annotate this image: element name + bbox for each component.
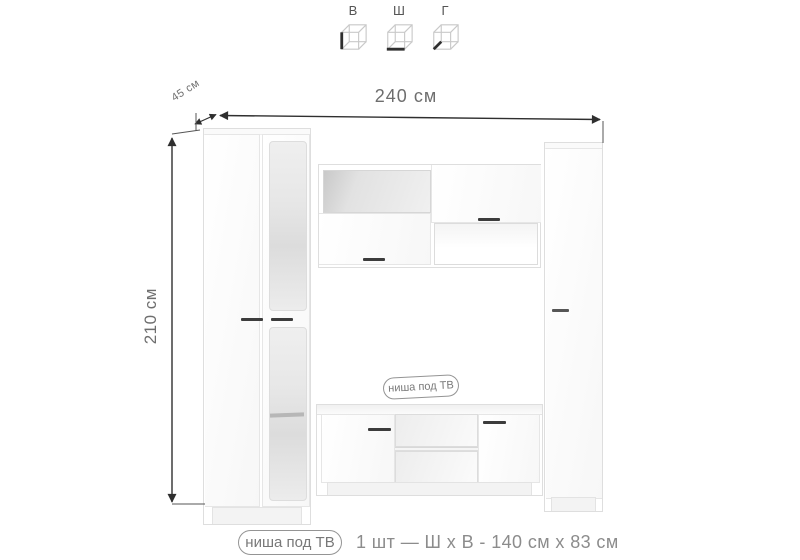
furniture-diagram: В Ш — [0, 0, 800, 560]
left-cabinet — [203, 128, 311, 525]
right-cabinet-door-handle — [552, 309, 569, 312]
tv-niche-badge: ниша под ТВ — [382, 374, 459, 400]
right-cabinet — [544, 142, 603, 512]
cube-width-edge-icon — [384, 21, 414, 53]
depth-dimension-line — [195, 115, 216, 125]
right-cabinet-door — [546, 148, 602, 499]
legend-item-height: В — [338, 3, 368, 53]
width-dimension-label: 240 см — [356, 86, 456, 107]
footer-niche-spec: 1 шт — Ш х В - 140 см х 83 см — [356, 532, 619, 553]
left-cabinet-glass-door-handle — [271, 318, 293, 321]
orientation-legend: В Ш — [338, 3, 460, 53]
tv-stand-left-door — [321, 414, 395, 483]
right-cabinet-plinth — [551, 497, 596, 511]
tv-stand — [316, 404, 543, 496]
wall-cabinet-right-door — [431, 165, 541, 223]
cube-depth-edge-icon — [430, 21, 460, 53]
depth-dimension-label: 45 см — [169, 77, 201, 104]
width-dimension-line — [220, 116, 600, 120]
legend-item-width: Ш — [384, 3, 414, 53]
tv-niche-badge-label: ниша под ТВ — [388, 379, 454, 394]
footer-niche-badge: ниша под ТВ — [238, 530, 342, 555]
legend-label-width: Ш — [393, 3, 405, 18]
wall-cabinet — [318, 164, 541, 268]
left-cabinet-plinth — [212, 507, 302, 524]
wall-cabinet-open-niche-right — [434, 223, 538, 265]
tv-stand-open-shelf-lower — [395, 451, 478, 483]
left-cabinet-glass-panel-upper — [269, 141, 307, 311]
legend-label-height: В — [349, 3, 358, 18]
left-cabinet-left-door-handle — [241, 318, 263, 321]
legend-item-depth: Г — [430, 3, 460, 53]
tv-stand-open-shelf-upper — [395, 414, 478, 447]
tv-stand-left-door-handle — [368, 428, 391, 431]
tv-stand-right-door — [478, 414, 540, 483]
wall-cabinet-left-door-handle — [363, 258, 385, 261]
height-dimension-label: 210 см — [141, 288, 161, 344]
tv-stand-plinth — [327, 482, 532, 495]
legend-label-depth: Г — [441, 3, 448, 18]
wall-cabinet-open-niche-left — [323, 170, 431, 213]
tv-stand-right-door-handle — [483, 421, 506, 424]
cube-height-edge-icon — [338, 21, 368, 53]
wall-cabinet-right-door-handle — [478, 218, 500, 221]
footer-niche-badge-label: ниша под ТВ — [245, 534, 334, 551]
